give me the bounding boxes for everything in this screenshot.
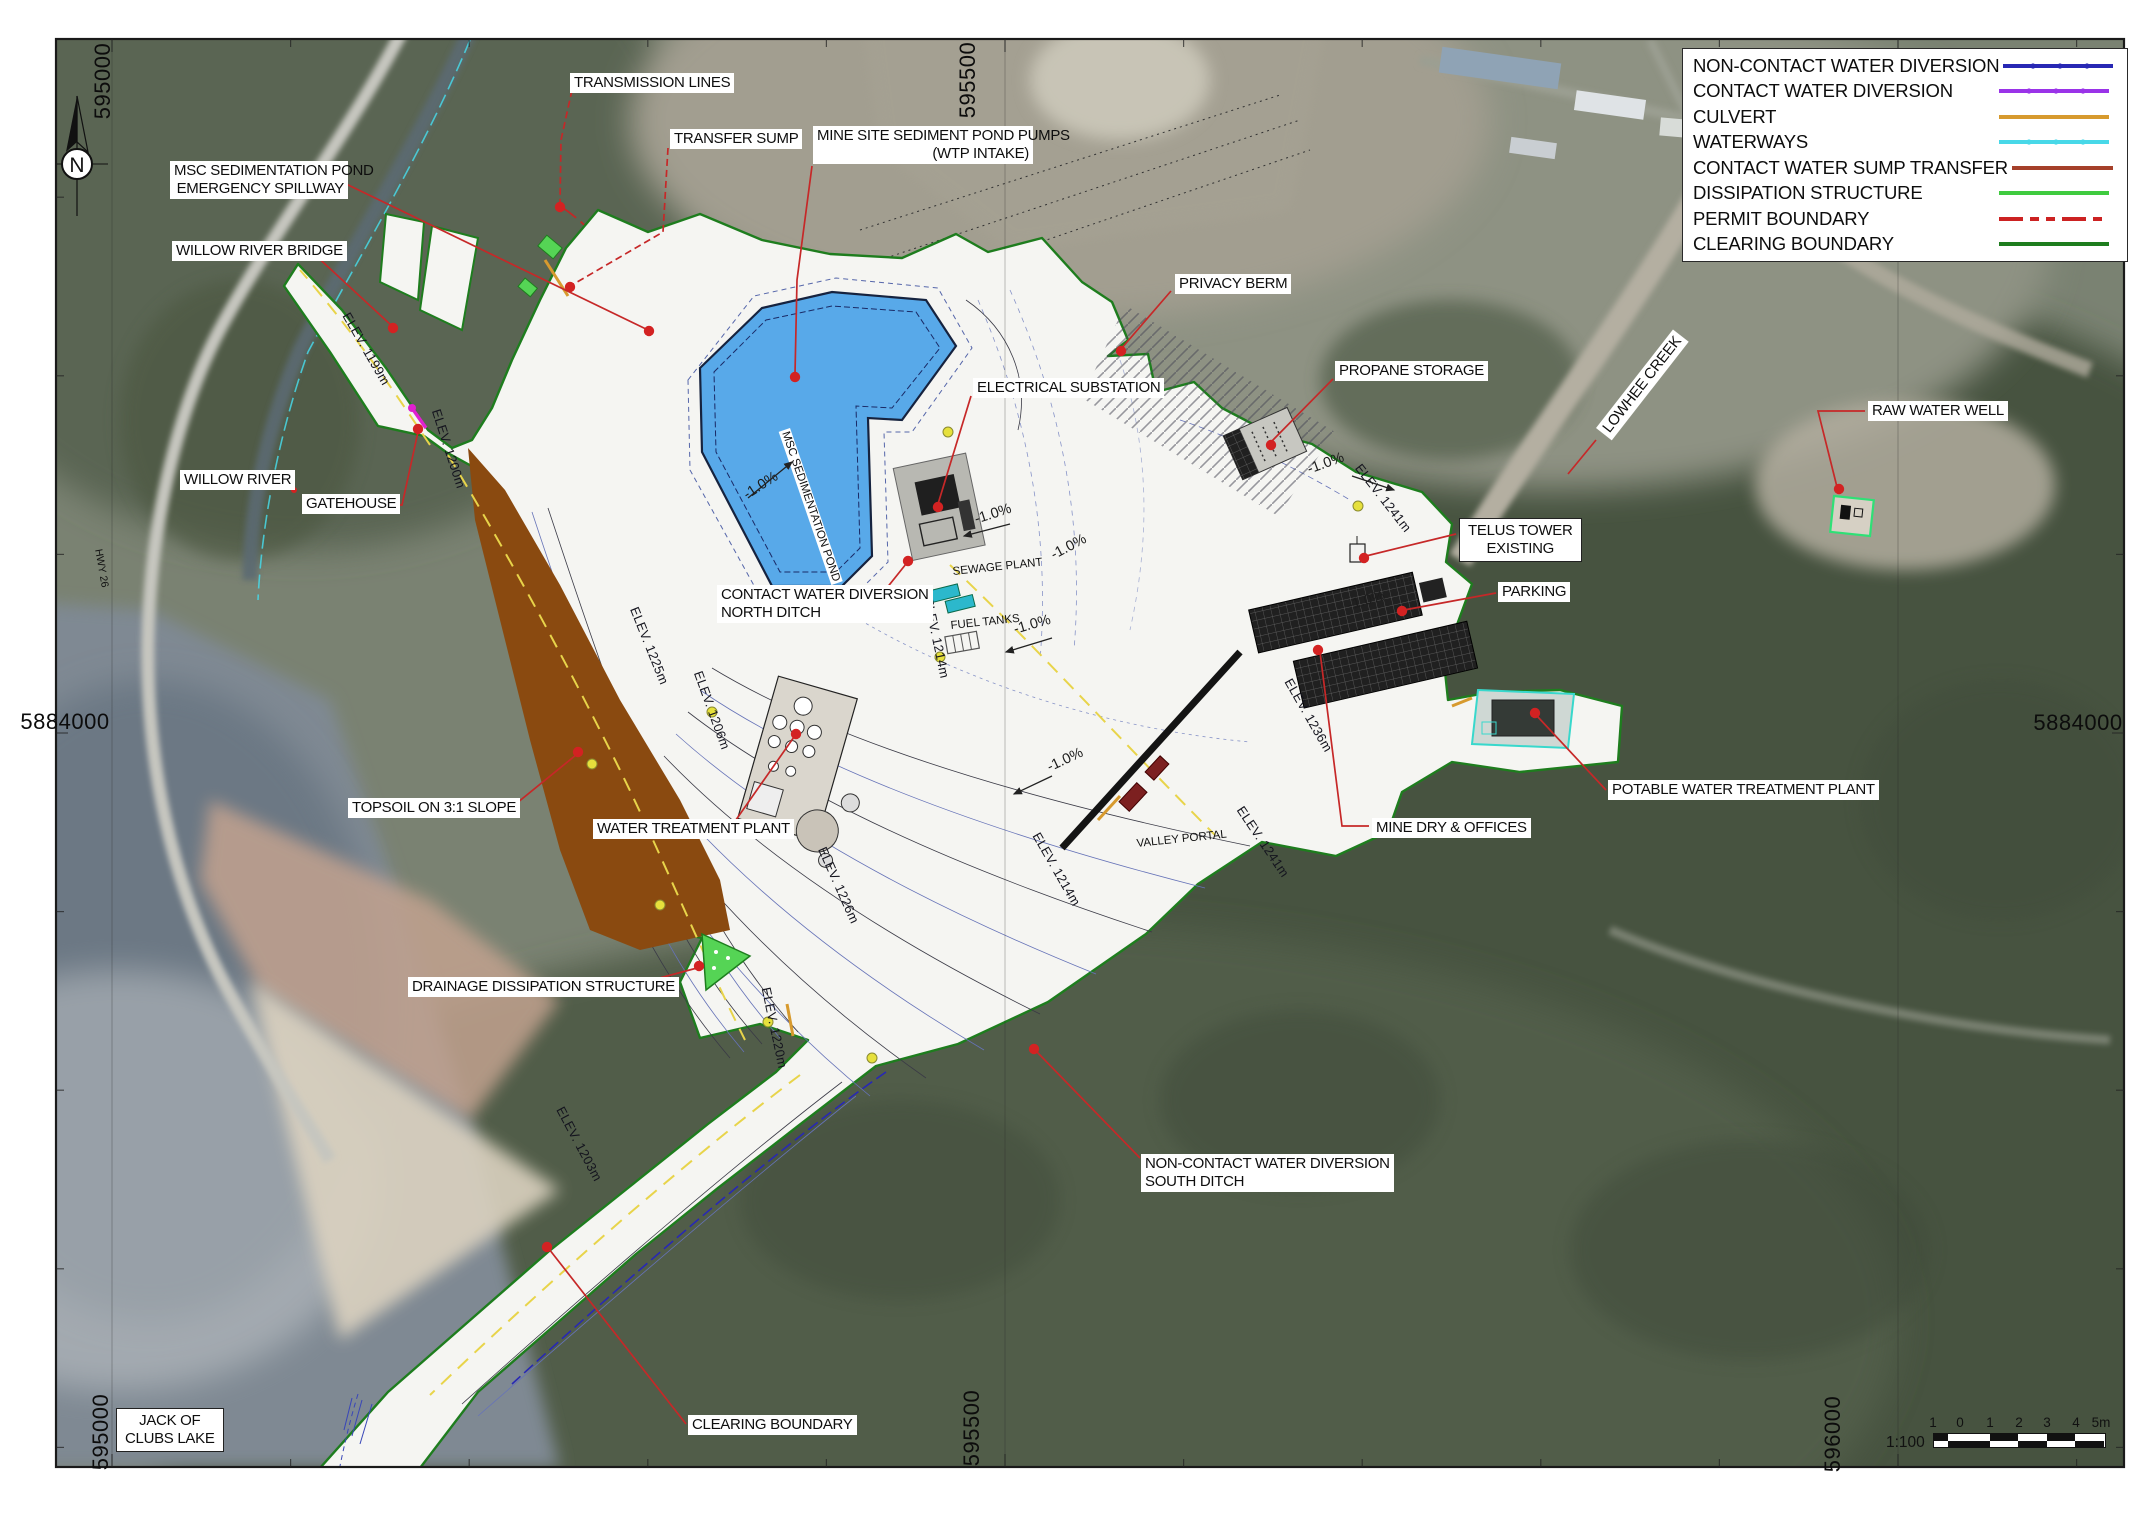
legend-row: WATERWAYS <box>1683 131 2127 153</box>
callout-line: SOUTH DITCH <box>1145 1173 1390 1191</box>
legend-row: NON-CONTACT WATER DIVERSION <box>1683 55 2127 77</box>
legend-label: CULVERT <box>1693 106 1776 128</box>
callout-clearing-boundary: CLEARING BOUNDARY <box>688 1415 857 1435</box>
callout-transfer-sump: TRANSFER SUMP <box>670 129 802 149</box>
map-sheet: N NON-CONTACT WATER DIVERSIONCONTACT WAT… <box>0 0 2144 1515</box>
callout-line: CLUBS LAKE <box>125 1430 215 1448</box>
legend-row: PERMIT BOUNDARY <box>1683 208 2127 230</box>
legend-label: WATERWAYS <box>1693 131 1808 153</box>
easting-label: 595000 <box>90 43 116 119</box>
easting-label: 595500 <box>955 42 981 118</box>
legend-line-sample <box>1995 187 2113 199</box>
callout-willow-river-bridge: WILLOW RIVER BRIDGE <box>172 241 347 261</box>
legend-label: NON-CONTACT WATER DIVERSION <box>1693 55 1999 77</box>
callout-topsoil-slope: TOPSOIL ON 3:1 SLOPE <box>348 798 520 818</box>
callout-line: TOPSOIL ON 3:1 SLOPE <box>352 799 516 817</box>
callout-line: MINE DRY & OFFICES <box>1376 819 1527 837</box>
legend-row: DISSIPATION STRUCTURE <box>1683 182 2127 204</box>
scale-tick-label: 5m <box>2092 1415 2111 1430</box>
legend-row: CLEARING BOUNDARY <box>1683 233 2127 255</box>
easting-label: 596000 <box>1820 1396 1846 1472</box>
callout-line: EXISTING <box>1468 540 1573 558</box>
legend-row: CONTACT WATER DIVERSION <box>1683 80 2127 102</box>
callout-line: TRANSFER SUMP <box>674 130 798 148</box>
callout-privacy-berm: PRIVACY BERM <box>1175 274 1291 294</box>
scale-tick-label: 0 <box>1956 1415 1964 1430</box>
callout-propane-storage: PROPANE STORAGE <box>1335 361 1488 381</box>
legend-label: PERMIT BOUNDARY <box>1693 208 1869 230</box>
callout-water-treatment-plant: WATER TREATMENT PLANT <box>593 819 794 839</box>
northing-label: 5884000 <box>20 709 109 735</box>
callout-line: WATER TREATMENT PLANT <box>597 820 790 838</box>
callout-line: ELECTRICAL SUBSTATION <box>977 379 1160 397</box>
easting-label: 595000 <box>88 1394 114 1470</box>
callout-line: EMERGENCY SPILLWAY <box>174 180 344 198</box>
legend-line-sample <box>1995 238 2113 250</box>
callout-raw-water-well: RAW WATER WELL <box>1868 401 2008 421</box>
callout-line: (WTP INTAKE) <box>817 145 1029 163</box>
scale-tick-label: 1 <box>1929 1415 1937 1430</box>
legend-line-sample <box>1995 85 2113 97</box>
callout-line: TRANSMISSION LINES <box>574 74 730 92</box>
callout-parking: PARKING <box>1498 582 1570 602</box>
callout-line: CLEARING BOUNDARY <box>692 1416 853 1434</box>
north-arrow-letter: N <box>69 154 84 177</box>
callout-mine-site-sediment-pond-pumps: MINE SITE SEDIMENT POND PUMPS(WTP INTAKE… <box>813 126 1033 164</box>
legend-label: DISSIPATION STRUCTURE <box>1693 182 1922 204</box>
callout-transmission-lines: TRANSMISSION LINES <box>570 73 734 93</box>
callout-line: CONTACT WATER DIVERSION <box>721 586 929 604</box>
callout-line: NORTH DITCH <box>721 604 929 622</box>
callout-telus-tower-existing: TELUS TOWEREXISTING <box>1459 518 1582 562</box>
legend-label: CONTACT WATER DIVERSION <box>1693 80 1953 102</box>
scale-ratio: 1:100 <box>1886 1434 1925 1452</box>
legend-line-sample <box>1995 111 2113 123</box>
callout-line: JACK OF <box>125 1412 215 1430</box>
raw-water-well-structure <box>1830 496 1874 536</box>
callout-line: GATEHOUSE <box>306 495 396 513</box>
callout-contact-water-diversion-north-ditch: CONTACT WATER DIVERSIONNORTH DITCH <box>717 585 933 623</box>
easting-label: 595500 <box>959 1390 985 1466</box>
callout-potable-water-treatment-plant: POTABLE WATER TREATMENT PLANT <box>1608 780 1879 800</box>
callout-line: MINE SITE SEDIMENT POND PUMPS <box>817 127 1029 145</box>
scale-bar: 1:100 1012345m <box>1886 1417 2116 1457</box>
callout-line: PRIVACY BERM <box>1179 275 1287 293</box>
callout-line: PARKING <box>1502 583 1566 601</box>
callout-mine-dry-offices: MINE DRY & OFFICES <box>1372 818 1531 838</box>
callout-line: MSC SEDIMENTATION POND <box>174 162 344 180</box>
scale-tick-label: 1 <box>1986 1415 1994 1430</box>
callout-willow-river: WILLOW RIVER <box>180 470 295 490</box>
callout-electrical-substation: ELECTRICAL SUBSTATION <box>973 378 1164 398</box>
legend-row: CONTACT WATER SUMP TRANSFER <box>1683 157 2127 179</box>
callout-gatehouse: GATEHOUSE <box>302 494 400 514</box>
callout-line: PROPANE STORAGE <box>1339 362 1484 380</box>
callout-line: NON-CONTACT WATER DIVERSION <box>1145 1155 1390 1173</box>
callout-line: TELUS TOWER <box>1468 522 1573 540</box>
scale-tick-label: 4 <box>2072 1415 2080 1430</box>
callout-drainage-dissipation-structure: DRAINAGE DISSIPATION STRUCTURE <box>408 977 679 997</box>
callout-line: DRAINAGE DISSIPATION STRUCTURE <box>412 978 675 996</box>
legend-row: CULVERT <box>1683 106 2127 128</box>
potable-wtp-structure <box>1472 690 1574 748</box>
callout-line: RAW WATER WELL <box>1872 402 2004 420</box>
legend-line-sample <box>2008 162 2113 174</box>
callout-msc-sedimentation-pond-emergency-spillway: MSC SEDIMENTATION PONDEMERGENCY SPILLWAY <box>170 161 348 199</box>
legend: NON-CONTACT WATER DIVERSIONCONTACT WATER… <box>1682 48 2128 262</box>
legend-line-sample <box>1995 213 2113 225</box>
legend-line-sample <box>1995 136 2113 148</box>
callout-jack-of-clubs-lake: JACK OFCLUBS LAKE <box>116 1408 224 1452</box>
callout-line: WILLOW RIVER <box>184 471 291 489</box>
legend-label: CONTACT WATER SUMP TRANSFER <box>1693 157 2008 179</box>
callout-line: WILLOW RIVER BRIDGE <box>176 242 343 260</box>
callout-line: POTABLE WATER TREATMENT PLANT <box>1612 781 1875 799</box>
legend-label: CLEARING BOUNDARY <box>1693 233 1894 255</box>
legend-line-sample <box>1999 60 2113 72</box>
scale-tick-label: 2 <box>2015 1415 2023 1430</box>
callout-non-contact-water-diversion-south-ditch: NON-CONTACT WATER DIVERSIONSOUTH DITCH <box>1141 1154 1394 1192</box>
scale-bar-graphic <box>1933 1433 2106 1448</box>
scale-tick-label: 3 <box>2043 1415 2051 1430</box>
northing-label: 5884000 <box>2033 710 2122 736</box>
